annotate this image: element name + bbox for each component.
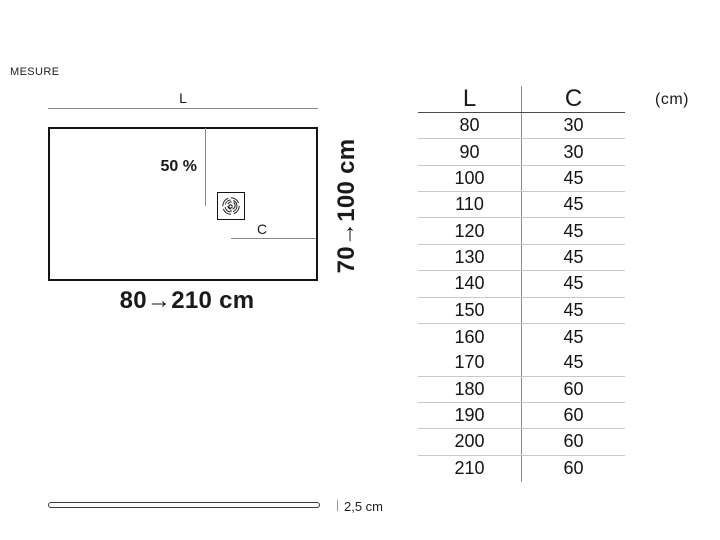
thickness-bar — [48, 502, 320, 508]
table-cell-c: 60 — [522, 403, 625, 428]
length-dimension-label: L — [48, 90, 318, 106]
length-range-label: 80→210 cm — [48, 287, 326, 315]
page-title: MESURE — [10, 66, 59, 78]
table-body: 8030903010045110451204513045140451504516… — [418, 113, 625, 482]
table-row: 18060 — [418, 377, 625, 403]
table-row: 14045 — [418, 271, 625, 297]
table-cell-l: 210 — [418, 456, 522, 482]
table-cell-l: 180 — [418, 377, 522, 402]
table-cell-c: 45 — [522, 324, 625, 350]
table-row: 8030 — [418, 113, 625, 139]
table-cell-c: 45 — [522, 218, 625, 243]
slope-divider-line — [205, 128, 206, 206]
table-row: 16045 — [418, 324, 625, 350]
table-row: 11045 — [418, 192, 625, 218]
thickness-tick — [337, 500, 338, 511]
table-cell-l: 100 — [418, 166, 522, 191]
length-dimension-line — [48, 108, 318, 109]
measurement-spec-sheet: MESURE L 50 % C 80→210 cm 70→100 cm 2,5 … — [0, 0, 720, 540]
table-cell-c: 45 — [522, 166, 625, 191]
table-cell-c: 45 — [522, 350, 625, 375]
table-cell-l: 190 — [418, 403, 522, 428]
table-cell-l: 150 — [418, 298, 522, 323]
table-row: 21060 — [418, 456, 625, 482]
table-cell-l: 80 — [418, 113, 522, 138]
table-cell-c: 45 — [522, 298, 625, 323]
table-cell-c: 45 — [522, 271, 625, 296]
table-row: 13045 — [418, 245, 625, 271]
table-cell-c: 60 — [522, 429, 625, 454]
table-cell-c: 45 — [522, 192, 625, 217]
table-cell-l: 160 — [418, 324, 522, 350]
drain-icon — [217, 192, 245, 220]
width-range-label: 70→100 cm — [333, 139, 361, 274]
shower-tray-outline: 50 % C — [48, 127, 318, 281]
table-cell-l: 120 — [418, 218, 522, 243]
table-cell-c: 60 — [522, 377, 625, 402]
table-cell-l: 170 — [418, 350, 522, 375]
table-cell-l: 130 — [418, 245, 522, 270]
thickness-label: 2,5 cm — [344, 499, 383, 514]
table-row: 12045 — [418, 218, 625, 244]
table-cell-l: 90 — [418, 139, 522, 164]
table-header-l: L — [418, 86, 522, 112]
table-cell-l: 200 — [418, 429, 522, 454]
table-row: 9030 — [418, 139, 625, 165]
table-cell-l: 140 — [418, 271, 522, 296]
table-cell-c: 30 — [522, 113, 625, 138]
table-header-row: L C — [418, 86, 625, 113]
table-row: 17045 — [418, 350, 625, 376]
table-row: 15045 — [418, 298, 625, 324]
slope-percentage-label: 50 % — [107, 158, 197, 176]
unit-label: (cm) — [655, 91, 689, 109]
width-dimension-line — [231, 238, 316, 239]
width-dimension-label: C — [257, 221, 267, 237]
table-cell-c: 30 — [522, 139, 625, 164]
table-cell-c: 60 — [522, 456, 625, 482]
size-table: L C 803090301004511045120451304514045150… — [418, 86, 625, 482]
table-row: 20060 — [418, 429, 625, 455]
table-row: 10045 — [418, 166, 625, 192]
table-cell-c: 45 — [522, 245, 625, 270]
table-header-c: C — [522, 86, 625, 112]
table-row: 19060 — [418, 403, 625, 429]
table-cell-l: 110 — [418, 192, 522, 217]
